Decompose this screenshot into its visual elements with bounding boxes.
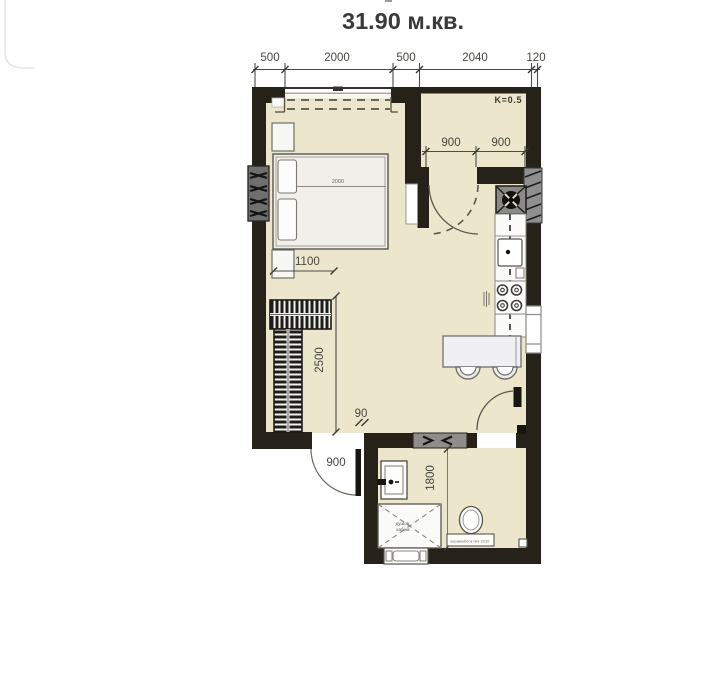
svg-text:2000: 2000 (332, 179, 344, 185)
svg-text:900: 900 (326, 457, 345, 469)
svg-text:500: 500 (260, 52, 279, 64)
svg-text:1100: 1100 (295, 256, 320, 268)
svg-text:кабіна: кабіна (396, 527, 410, 532)
svg-text:2000: 2000 (324, 52, 350, 64)
svg-text:500: 500 (396, 52, 415, 64)
svg-text:душов.: душов. (396, 521, 411, 526)
svg-text:900: 900 (441, 137, 460, 149)
svg-text:керамоблок НН-2232: керамоблок НН-2232 (450, 539, 490, 544)
svg-text:2500: 2500 (314, 347, 326, 373)
svg-text:2040: 2040 (462, 52, 488, 64)
svg-text:K=0.5: K=0.5 (495, 95, 522, 105)
svg-text:120: 120 (526, 52, 545, 64)
svg-text:90: 90 (355, 408, 368, 420)
svg-text:1800: 1800 (425, 465, 437, 491)
svg-text:900: 900 (491, 137, 510, 149)
svg-text:31.90 м.кв.: 31.90 м.кв. (342, 8, 464, 34)
